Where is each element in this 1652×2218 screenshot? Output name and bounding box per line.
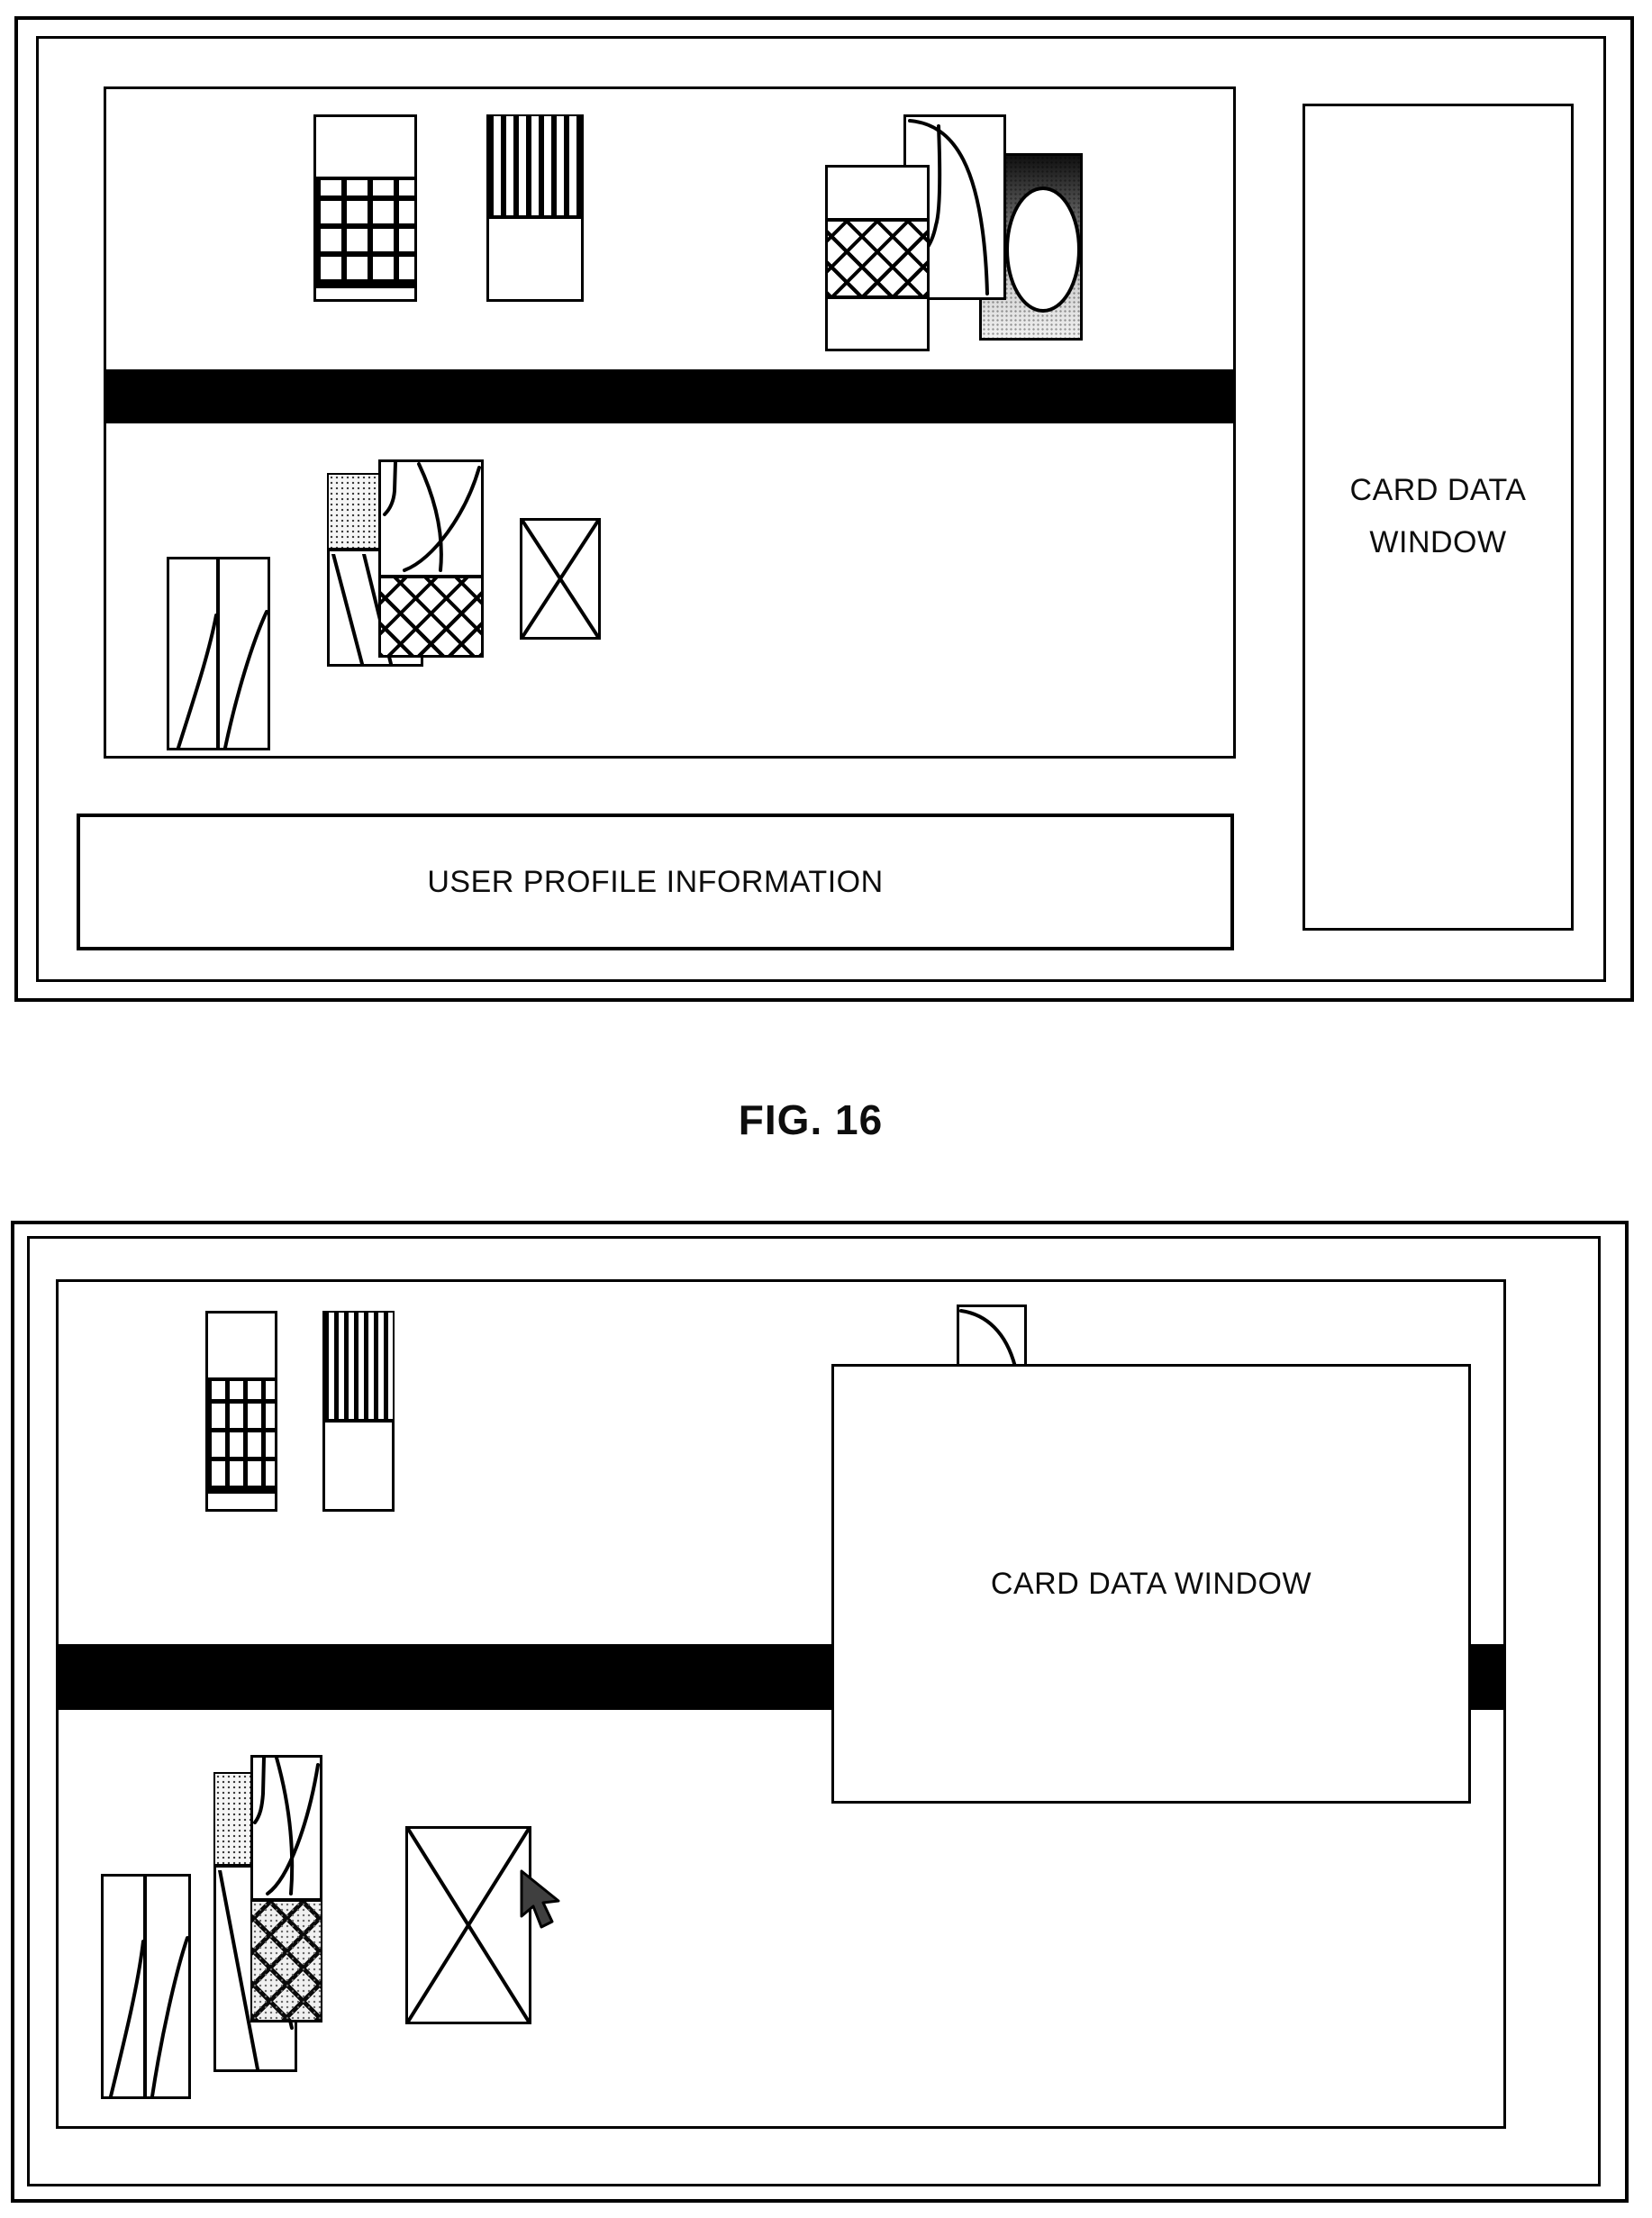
card-data-panel-line2: WINDOW bbox=[1369, 517, 1506, 569]
grid-pattern bbox=[315, 177, 415, 288]
fig16-caption: FIG. 16 bbox=[0, 1095, 1621, 1144]
hidden-card-behind-popup bbox=[957, 1304, 1027, 1369]
curve-sketch bbox=[253, 1758, 320, 1898]
patent-sheet: USER PROFILE INFORMATION CARD DATA WINDO… bbox=[0, 0, 1652, 2218]
vertical-stripe-card bbox=[486, 114, 584, 302]
x-pattern bbox=[408, 1829, 529, 2022]
cursor-arrow-icon bbox=[518, 1869, 574, 1938]
curve-left-sketch bbox=[169, 559, 268, 748]
user-profile-box: USER PROFILE INFORMATION bbox=[77, 814, 1234, 950]
curve-left-sketch bbox=[104, 1877, 188, 2096]
card-data-popup: CARD DATA WINDOW bbox=[831, 1364, 1471, 1804]
stripe-pattern bbox=[488, 116, 582, 219]
curve-sketch bbox=[381, 462, 481, 575]
diamond-hatch-pattern bbox=[380, 575, 482, 657]
curve-left-card bbox=[101, 1874, 191, 2099]
diamond-hatch-card bbox=[825, 165, 930, 351]
fig16-menu-bar bbox=[106, 369, 1233, 423]
curve-hatch-card bbox=[378, 459, 484, 658]
x-envelope-card bbox=[520, 518, 601, 640]
vertical-stripe-card bbox=[322, 1311, 395, 1512]
grid-pattern-card bbox=[205, 1311, 277, 1512]
card-data-popup-label: CARD DATA WINDOW bbox=[991, 1567, 1312, 1602]
x-envelope-card bbox=[405, 1826, 531, 2024]
card-data-panel: CARD DATA WINDOW bbox=[1303, 104, 1574, 931]
curve-sketch bbox=[959, 1307, 1024, 1367]
card-data-panel-line1: CARD DATA bbox=[1350, 465, 1527, 517]
grid-pattern-card bbox=[313, 114, 417, 302]
curve-hatch-card bbox=[250, 1755, 322, 2023]
grid-pattern bbox=[207, 1377, 276, 1494]
diamond-hatch-pattern bbox=[252, 1898, 321, 2020]
curve-left-card bbox=[167, 557, 270, 750]
user-profile-label: USER PROFILE INFORMATION bbox=[427, 865, 883, 900]
ellipse-motif bbox=[1005, 186, 1081, 313]
stripe-pattern bbox=[324, 1313, 393, 1423]
diamond-hatch-pattern bbox=[827, 218, 928, 299]
x-pattern bbox=[522, 521, 598, 637]
